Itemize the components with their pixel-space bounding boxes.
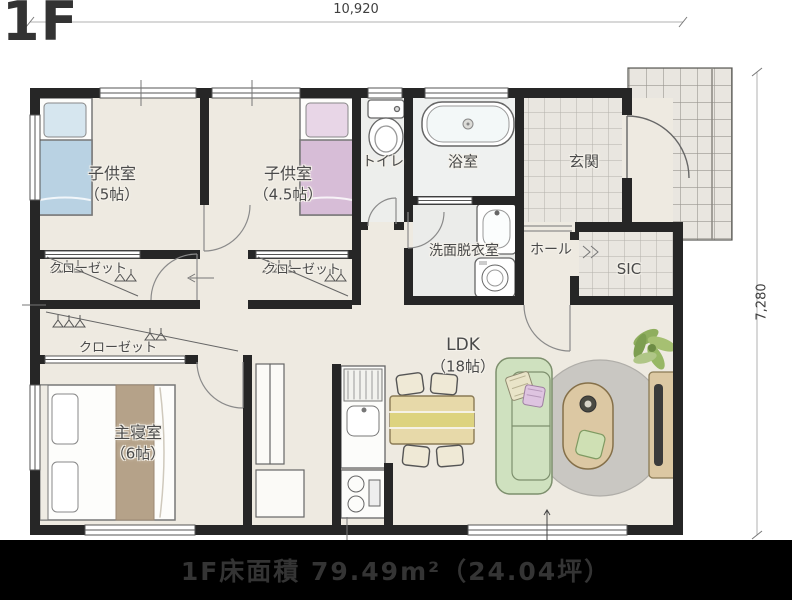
floor-plan-page: 1F 10,920 7,280 (0, 0, 792, 600)
washing-machine-icon (475, 258, 515, 298)
coffee-table-icon (563, 383, 613, 469)
room-label-closet2: クローゼット (263, 259, 341, 278)
room-label-closet1: クローゼット (49, 258, 127, 277)
room-size-master: （6帖） (111, 443, 166, 464)
room-size-kids1: （5帖） (85, 184, 140, 205)
room-label-bath: 浴室 (448, 151, 478, 172)
room-label-hall: ホール (530, 239, 572, 259)
caption-bar: 1F床面積 79.49m²（24.04坪） (0, 540, 792, 600)
kitchen-sink-icon (347, 406, 379, 436)
room-label-ldk: LDK (446, 335, 480, 355)
cushion-icon (522, 384, 545, 407)
refrigerator-icon (344, 369, 382, 401)
room-label-sic: SIC (617, 260, 641, 278)
room-label-kids2: 子供室 (264, 160, 312, 184)
tv-icon (654, 384, 663, 466)
room-label-entrance: 玄関 (569, 151, 599, 172)
dimension-height-label: 7,280 (755, 283, 770, 320)
bathtub-icon (422, 102, 514, 146)
dining-chair-icon (402, 445, 430, 468)
floor-label: 1F (2, 0, 78, 53)
stove-icon (341, 470, 385, 518)
room-label-washroom: 洗面脱衣室 (429, 240, 499, 260)
room-size-kids2: （4.5帖） (254, 184, 323, 205)
floor-cushion-icon (575, 429, 606, 460)
dimension-width-label: 10,920 (333, 2, 379, 17)
sofa-icon (496, 358, 552, 494)
floor-area-caption: 1F床面積 79.49m²（24.04坪） (181, 552, 611, 588)
toilet-icon (368, 100, 404, 156)
room-label-closet3: クローゼット (79, 337, 157, 356)
dining-chair-icon (436, 445, 464, 467)
room-label-kids1: 子供室 (88, 160, 136, 184)
room-size-ldk: （18帖） (431, 356, 495, 377)
room-label-toilet: トイレ (362, 151, 404, 171)
room-label-master: 主寝室 (114, 419, 162, 443)
kitchen-counter-icon (341, 366, 385, 518)
dining-chair-icon (396, 372, 425, 395)
